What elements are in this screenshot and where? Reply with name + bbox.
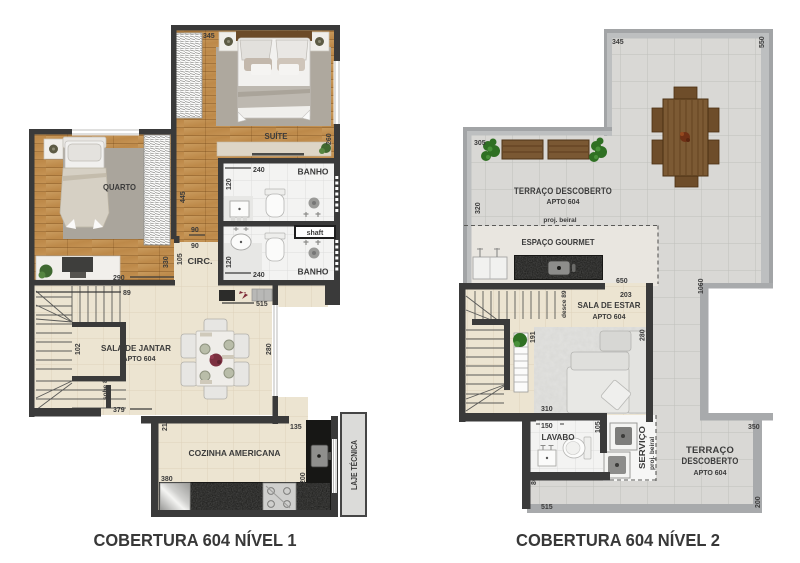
svg-text:89: 89 [123,290,131,297]
svg-text:TERRAÇO DESCOBERTO: TERRAÇO DESCOBERTO [514,186,612,196]
svg-text:320: 320 [475,202,482,214]
svg-text:proj. beiral: proj. beiral [543,217,576,224]
svg-text:310: 310 [541,406,553,413]
svg-text:80: 80 [531,477,538,485]
svg-text:215: 215 [162,419,169,431]
svg-text:90: 90 [191,243,199,250]
svg-text:SUÍTE: SUÍTE [265,131,288,141]
svg-text:445: 445 [180,191,187,203]
svg-text:COBERTURA 604 NÍVEL 2: COBERTURA 604 NÍVEL 2 [516,529,720,550]
svg-text:260: 260 [326,133,333,145]
svg-text:SALA DE ESTAR: SALA DE ESTAR [578,300,641,310]
svg-text:QUARTO: QUARTO [103,182,136,192]
svg-text:135: 135 [290,424,302,431]
svg-text:379: 379 [113,407,125,414]
svg-text:203: 203 [620,292,632,299]
svg-text:280: 280 [640,329,647,341]
svg-text:380: 380 [161,476,173,483]
svg-text:330: 330 [163,256,170,268]
svg-text:550: 550 [759,36,766,48]
svg-text:305: 305 [474,140,486,147]
svg-text:CIRC.: CIRC. [188,256,213,266]
svg-text:APTO 604: APTO 604 [694,470,727,477]
svg-text:150: 150 [541,423,553,430]
svg-text:LAVABO: LAVABO [542,432,575,442]
svg-text:COZINHA AMERICANA: COZINHA AMERICANA [189,448,281,458]
svg-text:191: 191 [530,331,537,343]
svg-text:sobe 89: sobe 89 [102,375,109,400]
svg-text:240: 240 [253,167,265,174]
svg-text:APTO 604: APTO 604 [593,314,626,321]
svg-text:shaft: shaft [307,230,324,237]
svg-text:1060: 1060 [698,278,705,294]
svg-text:SERVIÇO: SERVIÇO [637,426,647,469]
svg-text:345: 345 [203,33,215,40]
svg-text:BANHO: BANHO [298,267,329,277]
svg-text:515: 515 [256,301,268,308]
svg-text:105: 105 [177,253,184,265]
svg-text:90: 90 [191,227,199,234]
svg-text:desce 89: desce 89 [561,290,568,318]
svg-text:200: 200 [300,472,307,484]
svg-text:105: 105 [595,421,602,433]
svg-text:ESPAÇO GOURMET: ESPAÇO GOURMET [522,237,596,247]
svg-text:350: 350 [748,424,760,431]
svg-text:120: 120 [226,256,233,268]
svg-text:APTO 604: APTO 604 [123,356,156,363]
svg-text:102: 102 [75,343,82,355]
svg-text:240: 240 [253,272,265,279]
svg-text:SALA DE JANTAR: SALA DE JANTAR [101,343,171,353]
svg-text:200: 200 [755,496,762,508]
svg-text:proj. beiral: proj. beiral [649,437,656,470]
svg-text:120: 120 [226,178,233,190]
svg-text:APTO 604: APTO 604 [547,199,580,206]
svg-text:LAJE TÉCNICA: LAJE TÉCNICA [349,440,359,490]
svg-text:345: 345 [612,39,624,46]
svg-text:245: 245 [256,417,268,424]
svg-text:290: 290 [113,275,125,282]
svg-text:BANHO: BANHO [298,167,329,177]
svg-text:DESCOBERTO: DESCOBERTO [682,456,739,466]
svg-text:650: 650 [616,278,628,285]
svg-text:515: 515 [541,504,553,511]
svg-text:TERRAÇO: TERRAÇO [686,445,734,455]
svg-text:COBERTURA 604 NÍVEL 1: COBERTURA 604 NÍVEL 1 [94,529,297,550]
svg-text:280: 280 [266,343,273,355]
